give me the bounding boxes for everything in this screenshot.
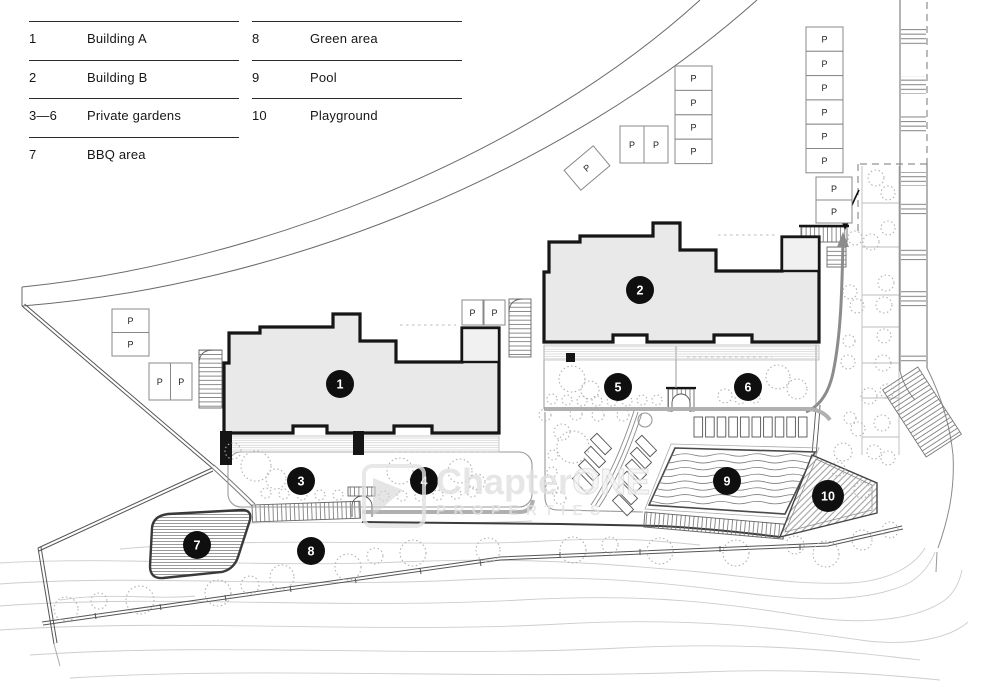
svg-text:1: 1 xyxy=(337,378,344,392)
legend-num: 7 xyxy=(29,147,87,162)
parking-stall-label: P xyxy=(821,156,827,166)
legend-num: 1 xyxy=(29,31,87,46)
parking-group-east-pair: P P xyxy=(816,177,852,223)
svg-text:6: 6 xyxy=(745,381,752,395)
svg-text:3: 3 xyxy=(298,475,305,489)
parking-stall-label: P xyxy=(690,98,696,108)
parking-group-mid: P P xyxy=(620,126,668,163)
parking-stall-label: P xyxy=(653,140,659,150)
walkway-a xyxy=(362,500,533,512)
legend-num: 2 xyxy=(29,70,87,85)
legend-row-pool: 9 Pool xyxy=(252,60,462,99)
marker-garden-3: 3 xyxy=(287,467,315,495)
right-garden-grid xyxy=(862,166,899,455)
parking-stall-label: P xyxy=(831,184,837,194)
walk-connector xyxy=(211,467,252,506)
svg-text:4: 4 xyxy=(421,475,428,489)
marker-bbq: 7 xyxy=(183,531,211,559)
parking-stall-label: P xyxy=(469,308,475,318)
marker-garden-5: 5 xyxy=(604,373,632,401)
legend-label: Building A xyxy=(87,31,147,46)
sun-loungers-angled xyxy=(572,433,656,515)
parking-stall-label: P xyxy=(821,35,827,45)
stairs-between-buildings xyxy=(509,299,531,357)
parking-group-west-1: P P xyxy=(112,309,149,356)
legend-label: Playground xyxy=(310,108,378,123)
parking-stall-label: P xyxy=(821,59,827,69)
svg-text:9: 9 xyxy=(724,475,731,489)
terrace-building-b xyxy=(544,345,819,360)
parking-stall-label: P xyxy=(690,74,696,84)
parking-stall-label: P xyxy=(821,107,827,117)
parking-group-west-2: P P xyxy=(149,363,192,400)
svg-text:5: 5 xyxy=(615,381,622,395)
marker-playground: 10 xyxy=(812,480,844,512)
parking-stall-label: P xyxy=(690,122,696,132)
stairs-right-road xyxy=(883,367,962,457)
legend-row-building-b: 2 Building B xyxy=(29,60,239,99)
parking-stall-label: P xyxy=(821,83,827,93)
parking-stall-label: P xyxy=(178,377,184,387)
parking-stall-label: P xyxy=(127,340,133,350)
parking-group-annex-a: P P xyxy=(462,300,505,325)
legend-row-playground: 10 Playground xyxy=(252,98,462,137)
marker-pool: 9 xyxy=(713,467,741,495)
walk-connector-2 xyxy=(214,465,255,504)
legend-column-1: 1 Building A 2 Building B 3—6 Private ga… xyxy=(29,21,239,175)
site-plan-page: P P P P P P P P P P P P xyxy=(0,0,988,691)
stairs-west-of-building-a xyxy=(199,350,222,408)
marker-garden-6: 6 xyxy=(734,373,762,401)
marker-building-a: 1 xyxy=(326,370,354,398)
building-b xyxy=(544,223,819,362)
legend-label: Building B xyxy=(87,70,148,85)
marker-building-b: 2 xyxy=(626,276,654,304)
legend-row-bbq-area: 7 BBQ area xyxy=(29,137,239,176)
wall-stub xyxy=(566,353,575,362)
legend-row-green-area: 8 Green area xyxy=(252,21,462,60)
svg-text:2: 2 xyxy=(637,284,644,298)
svg-text:8: 8 xyxy=(308,545,315,559)
parking-column-6: P P P P P P xyxy=(806,27,843,173)
wall-stub xyxy=(353,431,364,455)
marker-green-area: 8 xyxy=(297,537,325,565)
parking-stall-label: P xyxy=(629,140,635,150)
ramp-bbq-path xyxy=(252,501,361,522)
parking-stall-label: P xyxy=(157,377,163,387)
parking-stall-label: P xyxy=(690,147,696,157)
contour-lines xyxy=(0,521,968,680)
legend-row-private-gardens: 3—6 Private gardens xyxy=(29,98,239,137)
svg-text:7: 7 xyxy=(194,539,201,553)
marker-garden-4: 4 xyxy=(410,467,438,495)
parking-stall-label: P xyxy=(821,132,827,142)
legend-num: 8 xyxy=(252,31,310,46)
building-a-annex xyxy=(462,328,499,362)
road-crosswalk-stripes xyxy=(901,28,926,363)
left-site-boundary xyxy=(22,304,215,666)
legend-num: 9 xyxy=(252,70,310,85)
sun-loungers-row xyxy=(694,417,807,437)
parking-stall-label: P xyxy=(127,316,133,326)
legend-num: 10 xyxy=(252,108,310,123)
building-b-annex xyxy=(782,237,819,271)
legend-label: Private gardens xyxy=(87,108,181,123)
legend-label: Green area xyxy=(310,31,378,46)
legend-row-building-a: 1 Building A xyxy=(29,21,239,60)
parking-column-4: P P P P xyxy=(675,66,712,164)
parking-stall-rotated: P xyxy=(564,146,610,190)
parking-stall-label: P xyxy=(831,207,837,217)
svg-text:10: 10 xyxy=(821,490,835,504)
legend-column-2: 8 Green area 9 Pool 10 Playground xyxy=(252,21,462,137)
parking-stall-label: P xyxy=(491,308,497,318)
building-a xyxy=(220,314,499,465)
legend-label: BBQ area xyxy=(87,147,146,162)
legend-label: Pool xyxy=(310,70,337,85)
stairs-garden-3-4 xyxy=(348,487,375,496)
legend-num: 3—6 xyxy=(29,108,87,123)
